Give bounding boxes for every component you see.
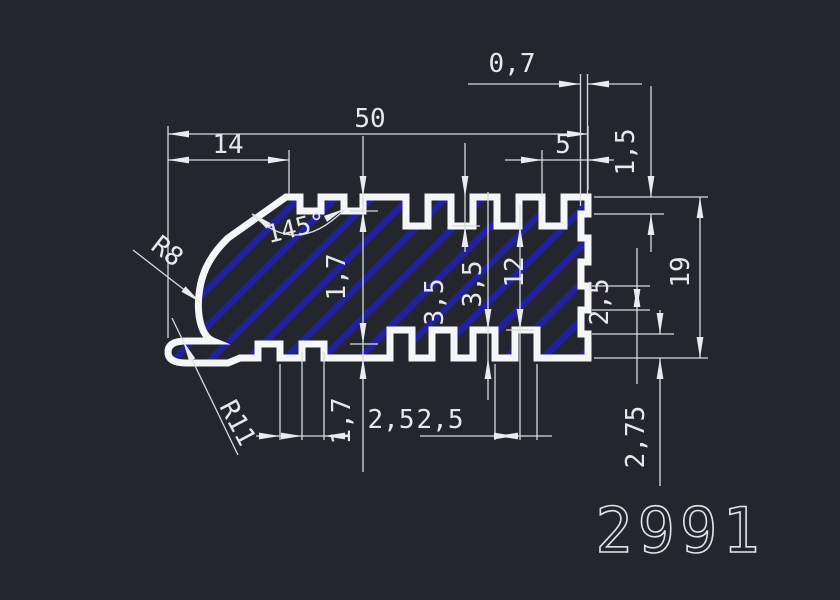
dim-right-tooth: 2,5: [585, 248, 650, 384]
dim-label-r8: R8: [145, 230, 188, 273]
dim-label-50: 50: [354, 104, 385, 134]
dim-label-1-7-top: 1,7: [322, 254, 352, 301]
dim-label-3-5-top: 3,5: [420, 279, 450, 326]
dim-label-2-5-right: 2,5: [585, 279, 615, 326]
dim-label-2-5-a: 2,5: [368, 405, 415, 435]
dim-step-depth: 0,7: [468, 49, 642, 206]
dim-label-0-7: 0,7: [489, 49, 536, 79]
dim-bottom-chain: 2,5 2,5: [256, 352, 552, 440]
dim-left-width: 14: [168, 130, 289, 194]
dim-label-2-5-b: 2,5: [417, 405, 464, 435]
dim-label-14: 14: [212, 130, 243, 160]
dim-label-5: 5: [555, 130, 571, 160]
dim-bottom-margin: 2,75: [592, 310, 674, 486]
dim-label-1-5: 1,5: [611, 129, 641, 176]
dim-label-r11: R11: [213, 395, 262, 451]
dim-label-3-5-bottom: 3,5: [458, 261, 488, 308]
dim-label-2-75: 2,75: [621, 406, 651, 469]
dim-top-offset: 1,5: [594, 86, 708, 252]
cad-drawing: 50 14 0,7 5 1,5: [0, 0, 840, 600]
cad-viewport: 50 14 0,7 5 1,5: [0, 0, 840, 600]
part-number: 2991: [595, 494, 764, 567]
dim-label-19: 19: [666, 256, 696, 287]
dim-right-top: 5: [505, 130, 614, 196]
dim-label-12: 12: [500, 256, 530, 287]
